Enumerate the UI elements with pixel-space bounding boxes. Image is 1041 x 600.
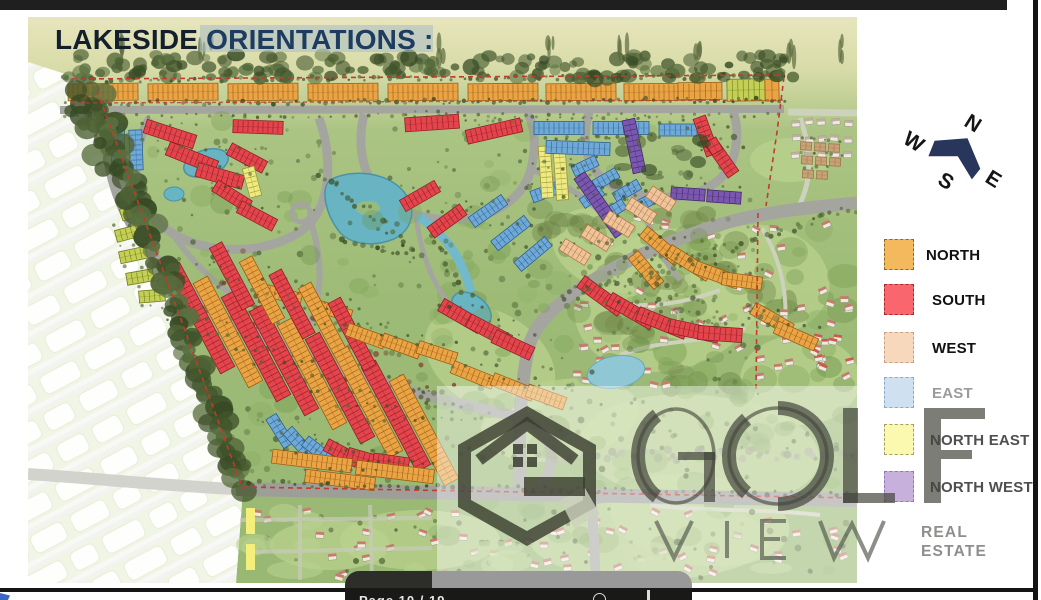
svg-text:ESTATE: ESTATE	[921, 543, 987, 560]
svg-text:REAL: REAL	[921, 524, 968, 541]
